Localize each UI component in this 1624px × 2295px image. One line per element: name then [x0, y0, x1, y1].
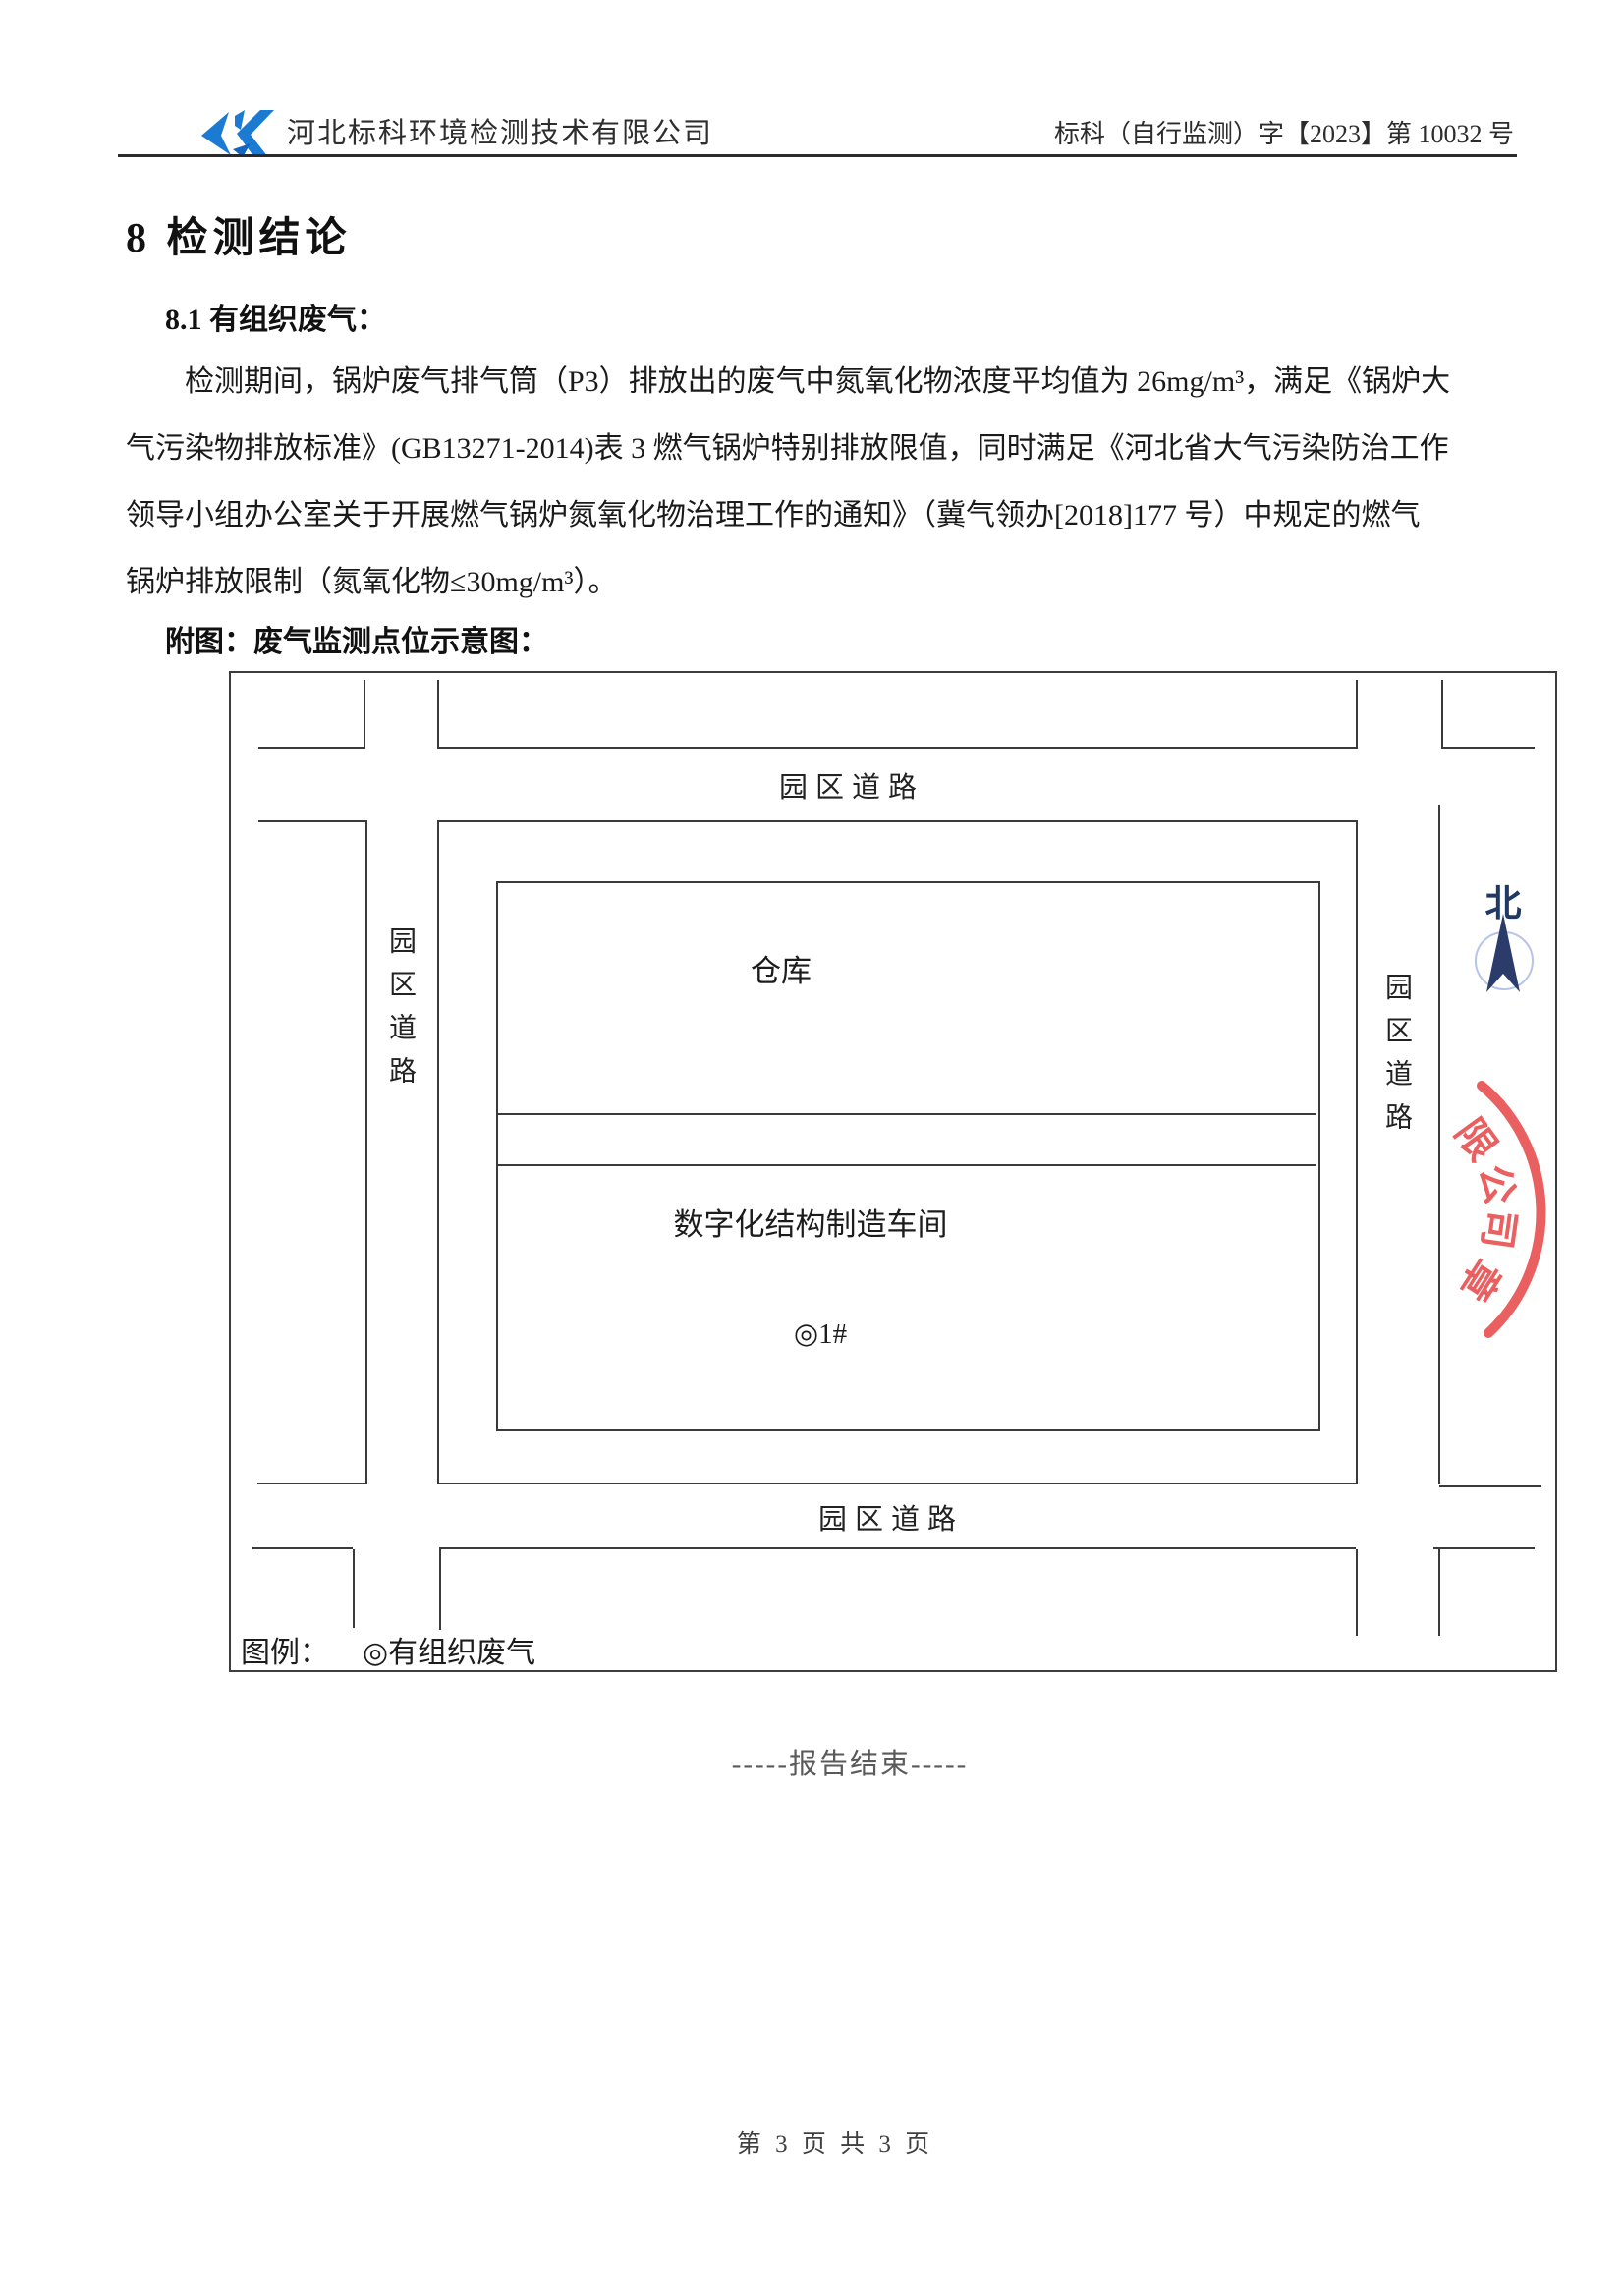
- road-line: [439, 820, 1356, 822]
- site-map: 园区道路 园区道路 园区道路 园区道路 仓库 数字化结构制造车间 ◎1# 图例：…: [229, 671, 1557, 1672]
- road-line: [353, 1549, 355, 1628]
- road-line: [364, 680, 365, 749]
- company-name: 河北标科环境检测技术有限公司: [287, 110, 713, 151]
- paragraph-line: 锅炉排放限制（氮氧化物≤30mg/m³）。: [126, 549, 1521, 616]
- stamp-char: 公: [1471, 1160, 1523, 1208]
- legend-label: 图例：: [241, 1637, 329, 1669]
- road-line: [437, 680, 439, 749]
- road-line: [437, 820, 439, 1484]
- road-label-bottom: 园区道路: [773, 1496, 1009, 1538]
- road-line: [437, 747, 1358, 749]
- road-line: [257, 1483, 365, 1484]
- road-line: [1441, 747, 1535, 749]
- road-label-top: 园区道路: [734, 764, 970, 806]
- end-of-report-note: -----报告结束-----: [0, 1741, 1624, 1782]
- paragraph-line: 气污染物排放标准》(GB13271-2014)表 3 燃气锅炉特别排放限值，同时…: [126, 416, 1521, 482]
- section-title: 8 检测结论: [126, 204, 352, 264]
- building-divider: [496, 1164, 1316, 1166]
- road-line: [258, 747, 364, 749]
- road-line: [1356, 1549, 1358, 1636]
- monitoring-point: ◎1#: [742, 1316, 899, 1351]
- road-line: [1433, 1547, 1535, 1549]
- paragraph-line: 领导小组办公室关于开展燃气锅炉氮氧化物治理工作的通知》（冀气领办[2018]17…: [126, 482, 1521, 549]
- company-stamp: 限 公 司 章: [1204, 1046, 1547, 1390]
- road-label-left: 园区道路: [380, 926, 420, 1123]
- building-compound: [496, 881, 1320, 1431]
- building-divider: [496, 1113, 1316, 1115]
- north-arrow-icon: [1479, 912, 1528, 996]
- road-line: [258, 820, 367, 822]
- figure-caption: 附图：废气监测点位示意图：: [165, 617, 548, 660]
- building-workshop-label: 数字化结构制造车间: [604, 1200, 1017, 1244]
- road-line: [1441, 680, 1443, 749]
- doc-number: 标科（自行监测）字【2023】第 10032 号: [1054, 114, 1514, 150]
- road-line: [365, 820, 367, 1484]
- road-line: [1439, 1485, 1541, 1487]
- building-warehouse-label: 仓库: [702, 946, 860, 990]
- road-line: [252, 1547, 353, 1549]
- report-page: 河北标科环境检测技术有限公司 标科（自行监测）字【2023】第 10032 号 …: [0, 0, 1624, 2295]
- road-line: [439, 1483, 1356, 1484]
- subsection-title: 8.1 有组织废气：: [165, 295, 386, 338]
- logo-icon: [199, 106, 290, 157]
- paragraph-line: 检测期间，锅炉废气排气筒（P3）排放出的废气中氮氧化物浓度平均值为 26mg/m…: [126, 349, 1521, 416]
- road-line: [439, 1547, 441, 1630]
- page-number: 第 3 页 共 3 页: [0, 2124, 1624, 2159]
- stamp-char: 司: [1474, 1206, 1523, 1252]
- stamp-char: 限: [1446, 1111, 1505, 1169]
- legend-item: ◎有组织废气: [363, 1637, 535, 1669]
- road-line: [1356, 680, 1358, 749]
- company-logo: [199, 106, 290, 157]
- road-line: [441, 1547, 1356, 1549]
- legend: 图例：◎有组织废气: [241, 1628, 535, 1671]
- header-rule: [118, 154, 1517, 157]
- stamp-char: 章: [1450, 1252, 1509, 1309]
- road-line: [1438, 1549, 1440, 1636]
